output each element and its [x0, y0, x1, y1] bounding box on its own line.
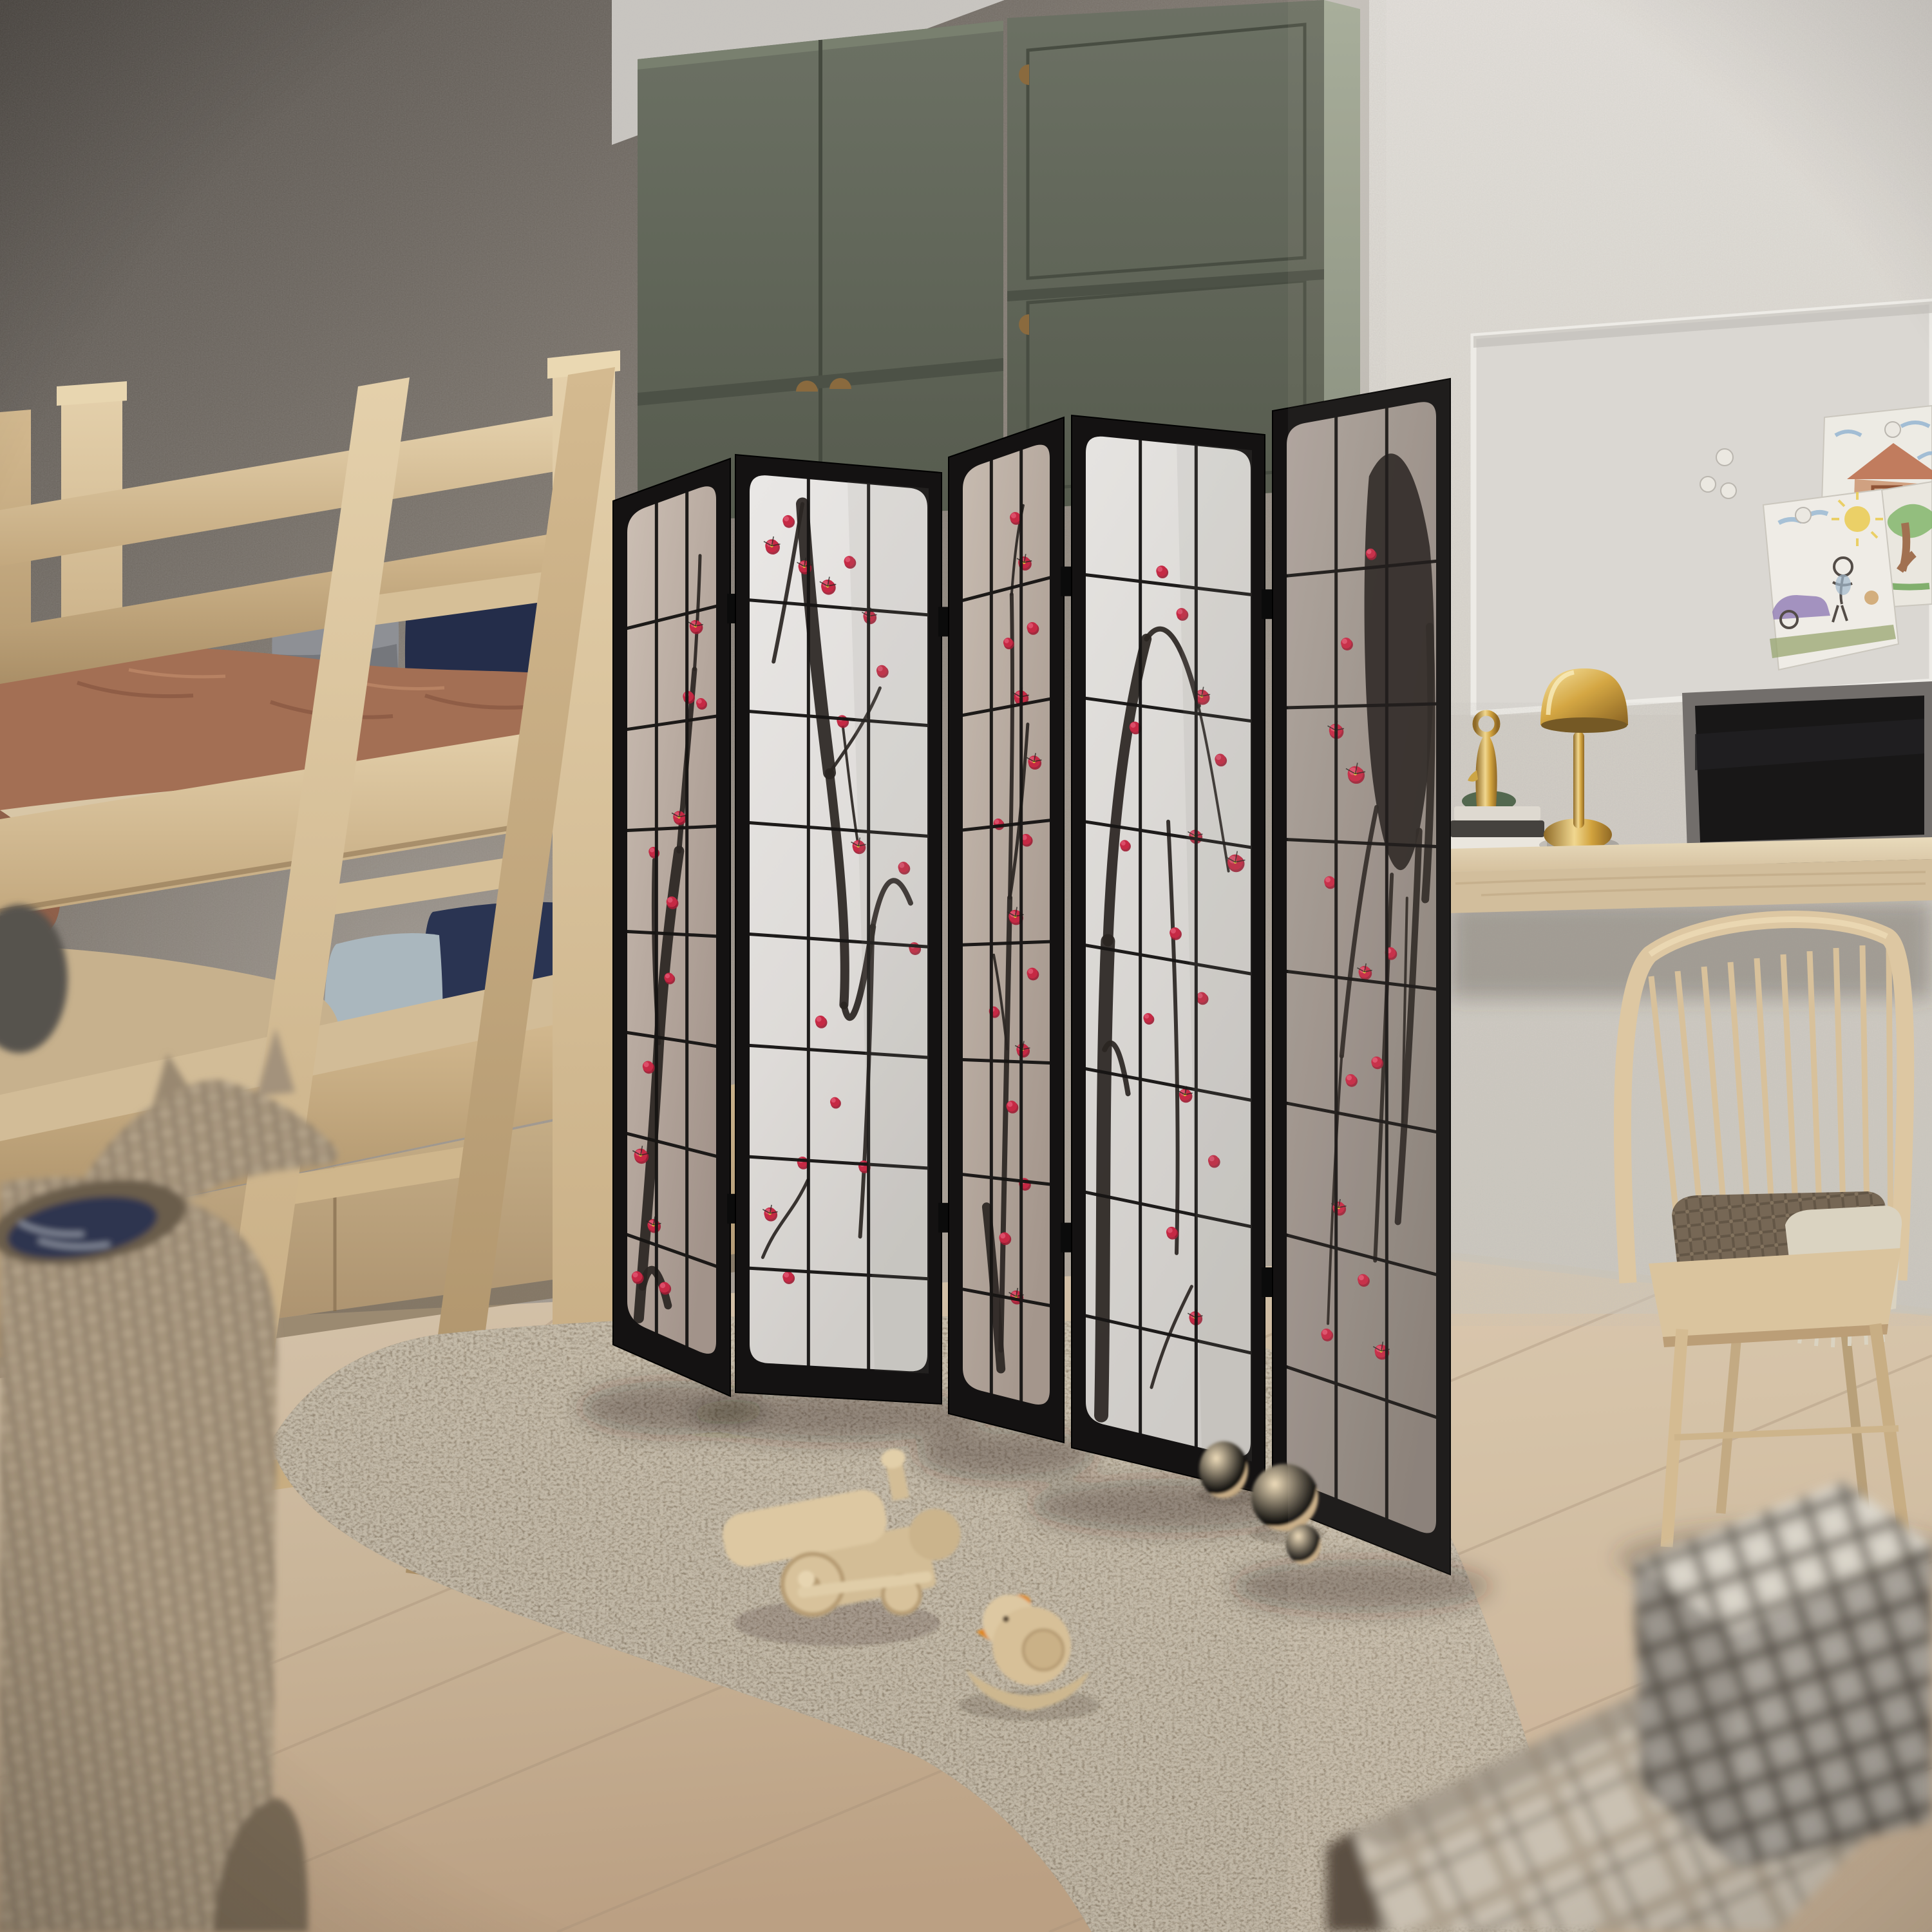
bedroom-scene [0, 0, 1932, 1932]
vignette [0, 0, 1932, 1932]
